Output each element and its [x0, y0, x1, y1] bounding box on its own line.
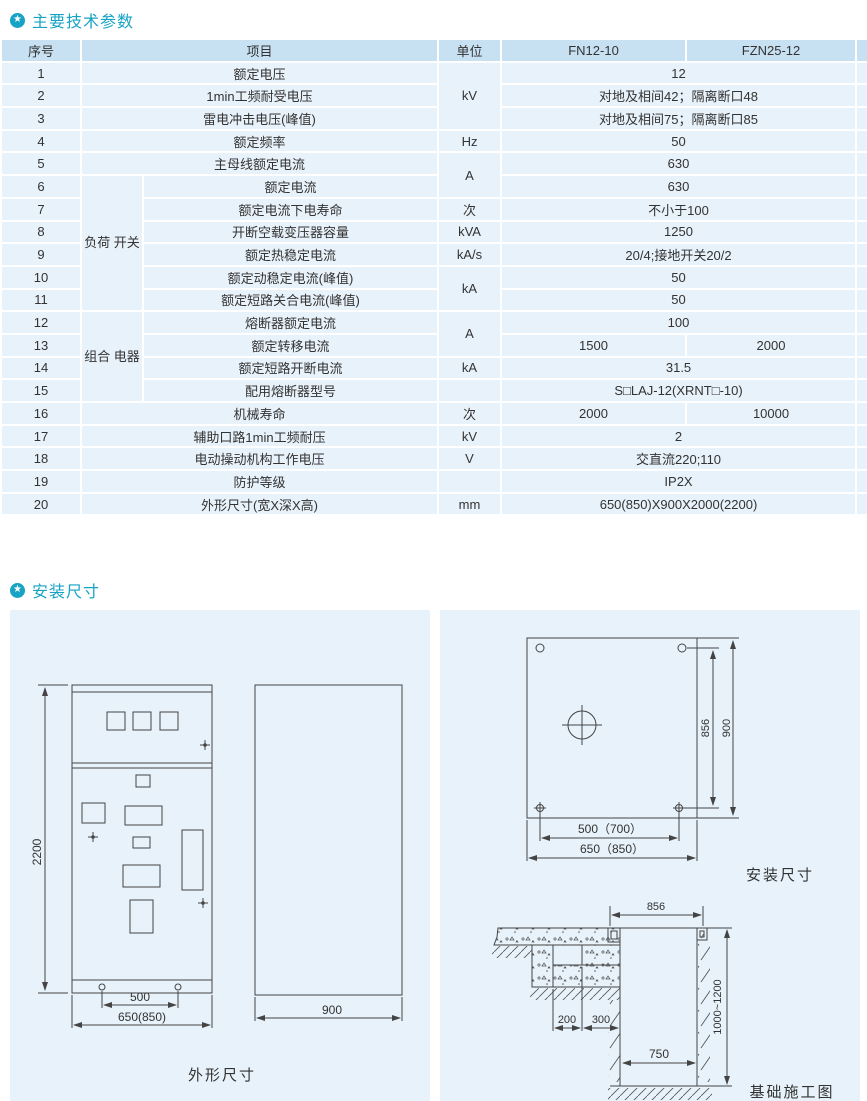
- edge-cell: [856, 62, 867, 85]
- cell-no: 12: [1, 311, 81, 334]
- edge-cell: [856, 379, 867, 402]
- cell-no: 6: [1, 175, 81, 198]
- cross-marker: [200, 740, 210, 750]
- concrete-footing: [553, 965, 620, 987]
- cell-value-fn12: 2000: [501, 402, 686, 425]
- cell-value: 100: [501, 311, 856, 334]
- cell-unit: mm: [438, 493, 501, 516]
- edge-cell: [856, 175, 867, 198]
- col-header-no: 序号: [1, 39, 81, 62]
- table-row: 3 雷电冲击电压(峰值) 对地及相间75；隔离断口85: [1, 107, 867, 130]
- cross-marker: [198, 898, 208, 908]
- edge-cell: [856, 107, 867, 130]
- table-row: 12 组合 电器 熔断器额定电流 A 100: [1, 311, 867, 334]
- cell-unit: [438, 379, 501, 402]
- table-row: 2 1min工频耐受电压 对地及相间42；隔离断口48: [1, 84, 867, 107]
- cell-unit: A: [438, 311, 501, 356]
- cell-unit: kA/s: [438, 243, 501, 266]
- cell-item: 主母线额定电流: [81, 152, 438, 175]
- ground-hatch: [530, 988, 620, 1000]
- cell-unit: 次: [438, 198, 501, 221]
- edge-cell: [856, 221, 867, 244]
- cell-unit: kA: [438, 357, 501, 380]
- star-circle-icon: ★: [10, 583, 25, 598]
- cell-item: 额定短路关合电流(峰值): [143, 289, 438, 312]
- cell-value: 630: [501, 175, 856, 198]
- cell-value: 不小于100: [501, 198, 856, 221]
- dim-label-200: 200: [558, 1014, 576, 1026]
- cell-no: 19: [1, 470, 81, 493]
- dim-label-foundation-top: 856: [647, 901, 665, 913]
- cell-no: 1: [1, 62, 81, 85]
- anchor-hole-marker: [673, 802, 685, 814]
- cell-no: 2: [1, 84, 81, 107]
- dim-label-inner-width: 500（700）: [578, 822, 642, 836]
- edge-cell: [856, 289, 867, 312]
- cell-item: 额定频率: [81, 130, 438, 153]
- cell-value: 31.5: [501, 357, 856, 380]
- dim-label-base-outer: 650(850): [118, 1010, 166, 1024]
- concrete-block: [582, 945, 620, 965]
- cell-value: 630: [501, 152, 856, 175]
- cell-value: 1250: [501, 221, 856, 244]
- edge-cell: [856, 39, 867, 62]
- cell-item: 防护等级: [81, 470, 438, 493]
- col-header-item: 项目: [81, 39, 438, 62]
- section-header-parameters: ★ 主要技术参数: [10, 8, 134, 32]
- cell-no: 16: [1, 402, 81, 425]
- dim-label-depth: 900: [322, 1003, 342, 1017]
- cell-no: 14: [1, 357, 81, 380]
- dim-label-depth-range: 1000~1200: [712, 979, 724, 1034]
- drawing-caption-foundation: 基础施工图: [749, 1084, 834, 1101]
- table-row: 1 额定电压 kV 12: [1, 62, 867, 85]
- col-header-fn12: FN12-10: [501, 39, 686, 62]
- edge-cell: [856, 84, 867, 107]
- cell-value: 50: [501, 130, 856, 153]
- ground-hatch: [492, 946, 532, 958]
- dim-label-outer-height: 900: [721, 719, 733, 737]
- table-header-row: 序号 项目 单位 FN12-10 FZN25-12: [1, 39, 867, 62]
- dim-label-height: 2200: [30, 838, 44, 865]
- dim-label-base-inner: 500: [130, 990, 150, 1004]
- dim-label-inner-height: 856: [700, 719, 712, 737]
- cell-item: 辅助口路1min工频耐压: [81, 425, 438, 448]
- installation-drawing: 856 900 500（700） 650（850） 安装尺寸: [440, 610, 860, 1101]
- cell-item: 雷电冲击电压(峰值): [81, 107, 438, 130]
- edge-cell: [856, 357, 867, 380]
- cell-item: 开断空载变压器容量: [143, 221, 438, 244]
- section-title: 主要技术参数: [32, 8, 134, 32]
- cell-item: 电动操动机构工作电压: [81, 447, 438, 470]
- cell-no: 7: [1, 198, 81, 221]
- edge-cell: [856, 334, 867, 357]
- cell-item: 熔断器额定电流: [143, 311, 438, 334]
- drawing-caption-outline: 外形尺寸: [188, 1067, 256, 1084]
- cell-value: 交直流220;110: [501, 447, 856, 470]
- edge-cell: [856, 470, 867, 493]
- cell-unit: kVA: [438, 221, 501, 244]
- cell-unit: V: [438, 447, 501, 470]
- dim-label-outer-width: 650（850）: [580, 842, 644, 856]
- cell-no: 20: [1, 493, 81, 516]
- cell-item: 额定电流: [143, 175, 438, 198]
- cell-item: 外形尺寸(宽X深X高): [81, 493, 438, 516]
- cell-no: 11: [1, 289, 81, 312]
- table-row: 4 额定频率 Hz 50: [1, 130, 867, 153]
- cell-no: 15: [1, 379, 81, 402]
- cell-unit: kV: [438, 425, 501, 448]
- parameters-table: 序号 项目 单位 FN12-10 FZN25-12 1 额定电压 kV 12 2…: [0, 38, 867, 516]
- cell-value: 12: [501, 62, 856, 85]
- group-cell-combined-apparatus: 组合 电器: [81, 311, 143, 402]
- cell-unit: 次: [438, 402, 501, 425]
- cell-value: 2: [501, 425, 856, 448]
- edge-cell: [856, 447, 867, 470]
- section-header-installation: ★ 安装尺寸: [10, 578, 100, 602]
- dim-label-750: 750: [649, 1047, 669, 1061]
- cross-marker: [88, 832, 98, 842]
- cell-value-fn12: 1500: [501, 334, 686, 357]
- star-circle-icon: ★: [10, 13, 25, 28]
- table-row: 16 机械寿命 次 2000 10000: [1, 402, 867, 425]
- table-row: 20 外形尺寸(宽X深X高) mm 650(850)X900X2000(2200…: [1, 493, 867, 516]
- edge-cell: [856, 425, 867, 448]
- mounting-plan-view: [527, 638, 697, 818]
- table-row: 18 电动操动机构工作电压 V 交直流220;110: [1, 447, 867, 470]
- edge-cell: [856, 266, 867, 289]
- dim-label-300: 300: [592, 1014, 610, 1026]
- group-cell-load-switch: 负荷 开关: [81, 175, 143, 311]
- cell-no: 10: [1, 266, 81, 289]
- cell-item: 额定电流下电寿命: [143, 198, 438, 221]
- cell-value: 650(850)X900X2000(2200): [501, 493, 856, 516]
- wall-hatch: [608, 1000, 620, 1082]
- edge-cell: [856, 130, 867, 153]
- concrete-step: [532, 945, 553, 987]
- cable-entry-marker: [562, 705, 602, 745]
- anchor-hole-marker: [534, 802, 546, 814]
- edge-cell: [856, 198, 867, 221]
- cabinet-front-view: [72, 685, 212, 993]
- outline-drawing: 2200 500 650(850) 900 外形尺寸: [10, 610, 430, 1101]
- cell-item: 额定热稳定电流: [143, 243, 438, 266]
- cell-unit: [438, 470, 501, 493]
- cell-value: 对地及相间75；隔离断口85: [501, 107, 856, 130]
- cell-no: 4: [1, 130, 81, 153]
- cell-value: S□LAJ-12(XRNT□-10): [501, 379, 856, 402]
- floor-hatch: [608, 1088, 712, 1100]
- cell-no: 5: [1, 152, 81, 175]
- cell-no: 17: [1, 425, 81, 448]
- cell-item: 配用熔断器型号: [143, 379, 438, 402]
- spec-sheet-page: ★ 主要技术参数 序号 项目 单位 FN12-10 FZN25-12 1 额定电…: [0, 0, 867, 1101]
- cell-unit: Hz: [438, 130, 501, 153]
- outline-dimensions-panel: 2200 500 650(850) 900 外形尺寸: [10, 610, 430, 1101]
- cell-item: 1min工频耐受电压: [81, 84, 438, 107]
- cabinet-side-view: [255, 685, 402, 995]
- installation-panel: 856 900 500（700） 650（850） 安装尺寸: [440, 610, 860, 1101]
- cell-item: 额定动稳定电流(峰值): [143, 266, 438, 289]
- cell-value: 对地及相间42；隔离断口48: [501, 84, 856, 107]
- edge-cell: [856, 493, 867, 516]
- cell-no: 18: [1, 447, 81, 470]
- cell-item: 机械寿命: [81, 402, 438, 425]
- cell-value: 50: [501, 289, 856, 312]
- cell-item: 额定转移电流: [143, 334, 438, 357]
- edge-cell: [856, 311, 867, 334]
- cell-unit: A: [438, 152, 501, 197]
- table-row: 5 主母线额定电流 A 630: [1, 152, 867, 175]
- table-row: 6 负荷 开关 额定电流 630: [1, 175, 867, 198]
- cell-no: 9: [1, 243, 81, 266]
- cell-no: 3: [1, 107, 81, 130]
- edge-cell: [856, 152, 867, 175]
- concrete-slab: [494, 928, 620, 945]
- col-header-fzn25: FZN25-12: [686, 39, 856, 62]
- drawing-caption-install: 安装尺寸: [746, 867, 814, 884]
- edge-cell: [856, 402, 867, 425]
- wall-hatch: [698, 934, 710, 1082]
- table-row: 17 辅助口路1min工频耐压 kV 2: [1, 425, 867, 448]
- cell-unit: kA: [438, 266, 501, 311]
- section-title: 安装尺寸: [32, 578, 100, 602]
- cell-value: IP2X: [501, 470, 856, 493]
- cell-value: 20/4;接地开关20/2: [501, 243, 856, 266]
- cell-no: 8: [1, 221, 81, 244]
- cell-value: 50: [501, 266, 856, 289]
- cable-duct: [553, 945, 582, 965]
- cell-no: 13: [1, 334, 81, 357]
- cell-item: 额定电压: [81, 62, 438, 85]
- table-row: 19 防护等级 IP2X: [1, 470, 867, 493]
- cell-unit: kV: [438, 62, 501, 130]
- cell-value-fzn25: 2000: [686, 334, 856, 357]
- edge-cell: [856, 243, 867, 266]
- cell-item: 额定短路开断电流: [143, 357, 438, 380]
- col-header-unit: 单位: [438, 39, 501, 62]
- cell-value-fzn25: 10000: [686, 402, 856, 425]
